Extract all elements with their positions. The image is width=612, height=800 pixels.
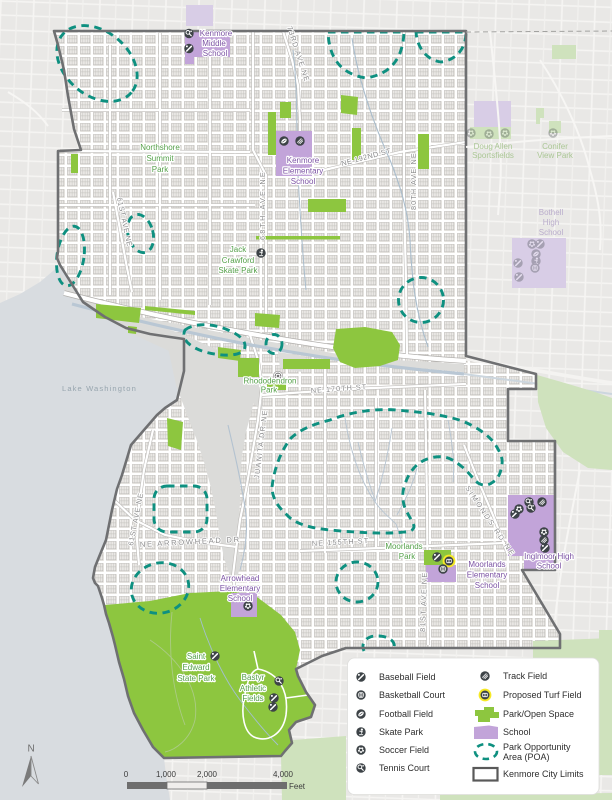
svg-text:Fields: Fields bbox=[242, 694, 263, 703]
svg-text:School: School bbox=[228, 594, 253, 603]
svg-text:Skate Park: Skate Park bbox=[379, 727, 424, 737]
svg-text:Lake Washington: Lake Washington bbox=[62, 384, 137, 393]
svg-text:Area (POA): Area (POA) bbox=[503, 752, 550, 762]
svg-text:4,000: 4,000 bbox=[273, 770, 294, 779]
svg-text:0: 0 bbox=[124, 770, 129, 779]
svg-text:Crawford: Crawford bbox=[222, 256, 254, 265]
svg-text:State Park: State Park bbox=[177, 674, 215, 683]
svg-text:80TH AVE NE: 80TH AVE NE bbox=[409, 152, 418, 210]
svg-text:Proposed Turf Field: Proposed Turf Field bbox=[503, 690, 582, 700]
svg-text:School: School bbox=[291, 177, 316, 186]
svg-text:Inglmoor High: Inglmoor High bbox=[524, 552, 574, 561]
svg-text:Athletic: Athletic bbox=[240, 684, 266, 693]
svg-text:School: School bbox=[475, 581, 500, 590]
svg-text:Feet: Feet bbox=[289, 782, 306, 791]
svg-text:School: School bbox=[537, 562, 562, 571]
svg-text:Summit: Summit bbox=[146, 154, 174, 163]
svg-text:Football Field: Football Field bbox=[379, 709, 433, 719]
svg-text:Kenmore: Kenmore bbox=[287, 156, 320, 165]
svg-text:Rhododendron: Rhododendron bbox=[244, 377, 297, 386]
svg-text:Soccer Field: Soccer Field bbox=[379, 745, 429, 755]
svg-text:Park/Open Space: Park/Open Space bbox=[503, 709, 574, 719]
svg-text:1,000: 1,000 bbox=[156, 770, 177, 779]
svg-text:Tennis Court: Tennis Court bbox=[379, 763, 430, 773]
svg-text:Skate Park: Skate Park bbox=[218, 266, 258, 275]
svg-text:Bastyr: Bastyr bbox=[242, 673, 265, 682]
svg-text:Park: Park bbox=[399, 552, 416, 561]
svg-text:Moorlands: Moorlands bbox=[385, 542, 422, 551]
svg-text:Kenmore City Limits: Kenmore City Limits bbox=[503, 769, 584, 779]
svg-text:Conifer: Conifer bbox=[542, 142, 568, 151]
svg-text:Sportsfields: Sportsfields bbox=[472, 151, 514, 160]
svg-text:Jack: Jack bbox=[230, 245, 247, 254]
svg-text:Arrowhead: Arrowhead bbox=[221, 574, 260, 583]
svg-text:Northshore: Northshore bbox=[140, 143, 180, 152]
svg-text:Baseball Field: Baseball Field bbox=[379, 672, 436, 682]
svg-text:Park: Park bbox=[261, 386, 278, 395]
svg-text:N: N bbox=[28, 744, 35, 755]
svg-text:School: School bbox=[539, 228, 564, 237]
svg-text:Saint: Saint bbox=[187, 652, 206, 661]
svg-text:High: High bbox=[543, 218, 559, 227]
svg-text:2,000: 2,000 bbox=[197, 770, 218, 779]
svg-text:Edward: Edward bbox=[182, 663, 209, 672]
svg-text:Doug Allen: Doug Allen bbox=[474, 142, 513, 151]
svg-text:Bothell: Bothell bbox=[539, 208, 564, 217]
svg-text:Park: Park bbox=[152, 165, 169, 174]
svg-text:Elementary: Elementary bbox=[220, 584, 260, 593]
svg-text:View Park: View Park bbox=[537, 151, 574, 160]
svg-text:Basketball Court: Basketball Court bbox=[379, 690, 446, 700]
svg-text:Track Field: Track Field bbox=[503, 671, 547, 681]
svg-text:Park Opportunity: Park Opportunity bbox=[503, 742, 571, 752]
svg-text:School: School bbox=[203, 49, 228, 58]
svg-text:68TH AVE NE: 68TH AVE NE bbox=[258, 170, 267, 240]
svg-text:School: School bbox=[503, 727, 531, 737]
svg-text:Elementary: Elementary bbox=[283, 167, 323, 176]
svg-text:Middle: Middle bbox=[202, 39, 226, 48]
svg-text:Moorlands: Moorlands bbox=[468, 560, 505, 569]
svg-text:Elementary: Elementary bbox=[467, 571, 507, 580]
svg-text:Kenmore: Kenmore bbox=[200, 29, 233, 38]
